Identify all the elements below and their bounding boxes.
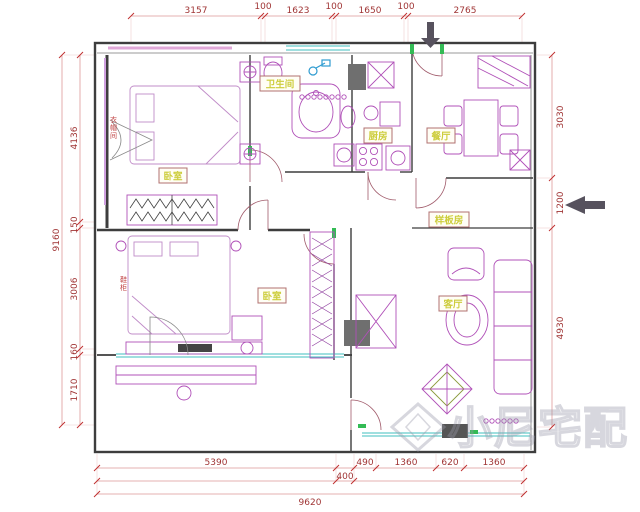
bedroom-2: 鞋柜 [116, 232, 334, 358]
dim-bottom-2: 490 [356, 458, 373, 468]
svg-text:厨房: 厨房 [368, 131, 387, 143]
room-label-living: 客厅 [439, 296, 467, 311]
entry-door-arc [412, 46, 442, 76]
room-label-dining: 餐厅 [427, 128, 455, 143]
bedroom-1: 衣帽间 [110, 62, 260, 225]
chair [500, 106, 518, 126]
watermark-logo-icon [392, 404, 444, 450]
sofa [494, 260, 532, 394]
svg-text:样板房: 样板房 [435, 215, 464, 227]
bedroom1-door-arc [238, 200, 268, 230]
bedroom2-door-arc [304, 234, 334, 264]
chair [364, 106, 378, 120]
dim-top-5: 1650 [359, 6, 382, 16]
room-labels: 卫生间 厨房 餐厅 卧室 样板房 卧室 客厅 [159, 76, 469, 311]
dining-door-arc [416, 178, 446, 208]
dim-right-2: 1200 [556, 191, 566, 214]
bed-quilt-lines [132, 296, 176, 334]
living-room [422, 248, 532, 414]
dim-right-1: 3030 [556, 105, 566, 128]
dim-left-3: 3006 [70, 277, 80, 300]
dim-left-1: 4136 [70, 126, 80, 149]
chair [444, 106, 462, 126]
dim-bottom: 5390 490 1360 620 1360 400 9620 [94, 454, 527, 508]
scribble-circles [300, 95, 346, 99]
lamp-icon [116, 241, 126, 251]
watermark-text: 小尼宅配 [448, 403, 628, 454]
dim-left-total: 9160 [52, 228, 62, 251]
dim-bottom-total: 9620 [299, 498, 322, 508]
dining [444, 56, 530, 170]
column [348, 64, 366, 90]
wardrobe-hangers [312, 238, 332, 346]
tv [178, 344, 212, 352]
mini-label-shoe-cabinet: 鞋柜 [120, 275, 127, 292]
stool [241, 342, 253, 354]
svg-text:卫生间: 卫生间 [266, 79, 295, 91]
dim-top-3: 1623 [287, 6, 310, 16]
dim-left-ticks [59, 52, 83, 428]
dim-bottom-4: 620 [441, 458, 458, 468]
floor-plan: 3157 100 1623 100 1650 100 2765 4136 150… [0, 0, 640, 512]
dim-right: 3030 1200 4930 [537, 52, 566, 430]
room-label-bedroom-1: 卧室 [159, 168, 187, 183]
dim-left-2: 150 [70, 216, 80, 233]
dim-bottom-extensions [97, 454, 524, 495]
bed-1 [130, 86, 240, 164]
small-table [380, 102, 400, 126]
kitchen-door-arc [368, 172, 396, 200]
side-arrow-icon [565, 196, 605, 214]
dining-table [464, 100, 498, 156]
room-label-sample-room: 样板房 [429, 212, 469, 227]
svg-text:餐厅: 餐厅 [430, 131, 451, 143]
dim-bottom-3: 1360 [395, 458, 418, 468]
stove [356, 144, 382, 170]
pillow [134, 242, 162, 256]
mini-label-wardrobe: 衣帽间 [110, 115, 117, 140]
dim-top: 3157 100 1623 100 1650 100 2765 [128, 2, 525, 42]
faucet-icon [309, 60, 330, 75]
vanity [232, 316, 262, 340]
svg-text:卧室: 卧室 [262, 291, 282, 303]
dim-bottom-mid: 400 [336, 472, 353, 482]
bed-2 [128, 236, 230, 334]
lamp-icon [231, 241, 241, 251]
kitchen [348, 62, 410, 170]
dim-bottom-1: 5390 [205, 458, 228, 468]
dim-left-4: 160 [70, 343, 80, 360]
dim-left-5: 1710 [70, 378, 80, 401]
watermark: 小尼宅配 [392, 403, 628, 454]
study-strip [116, 317, 256, 400]
doors [238, 44, 478, 434]
dim-right-3: 4930 [556, 316, 566, 339]
washbasin [341, 106, 355, 128]
dim-top-1: 3157 [185, 6, 208, 16]
dim-left: 4136 150 3006 160 1710 9160 [52, 52, 94, 428]
walls [95, 43, 535, 452]
pillow [170, 242, 198, 256]
dim-top-2: 100 [254, 2, 271, 12]
bed-quilt-lines [198, 86, 238, 164]
chair [177, 386, 191, 400]
chair [500, 134, 518, 154]
pillow [136, 94, 154, 122]
bathroom [264, 57, 355, 166]
svg-text:客厅: 客厅 [442, 299, 463, 311]
dim-right-extensions [537, 55, 550, 427]
room-label-bathroom: 卫生间 [260, 76, 300, 91]
dim-bottom-5: 1360 [483, 458, 506, 468]
svg-text:卧室: 卧室 [163, 171, 183, 183]
room-label-kitchen: 厨房 [364, 128, 392, 143]
column [344, 320, 370, 346]
dim-top-4: 100 [325, 2, 342, 12]
armchair [448, 248, 484, 280]
dim-top-extensions [131, 18, 522, 42]
wardrobe [310, 232, 334, 358]
room-label-bedroom-2: 卧室 [258, 288, 286, 303]
bathroom-door-arc [250, 150, 282, 182]
dim-left-extensions [64, 55, 94, 425]
dim-top-7: 2765 [454, 6, 477, 16]
sink [386, 146, 410, 170]
dim-top-6: 100 [397, 2, 414, 12]
